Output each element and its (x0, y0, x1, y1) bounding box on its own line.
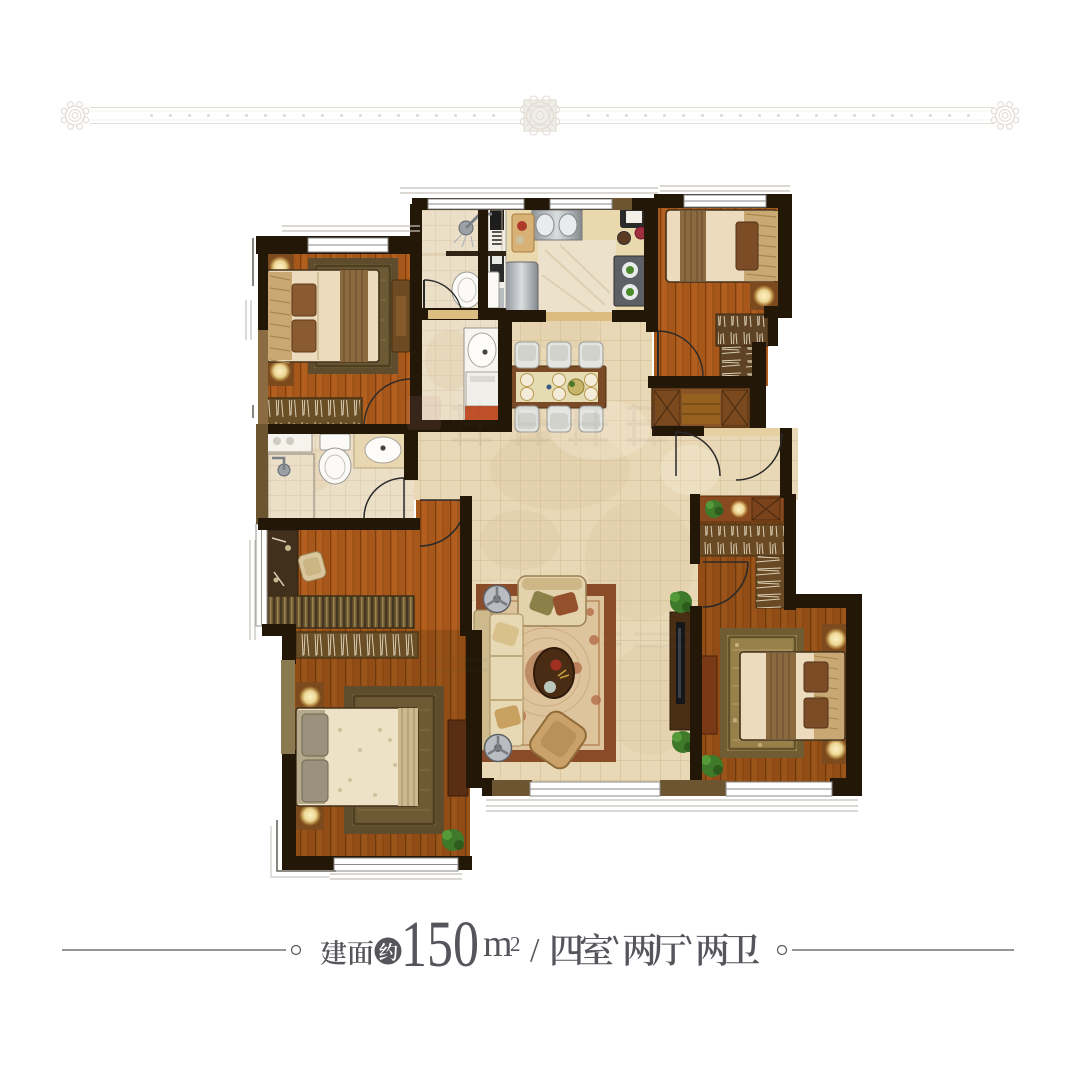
svg-text:/: / (530, 932, 540, 969)
svg-text:150: 150 (401, 908, 479, 981)
svg-text:m: m (483, 923, 513, 965)
svg-text:2: 2 (510, 932, 521, 956)
